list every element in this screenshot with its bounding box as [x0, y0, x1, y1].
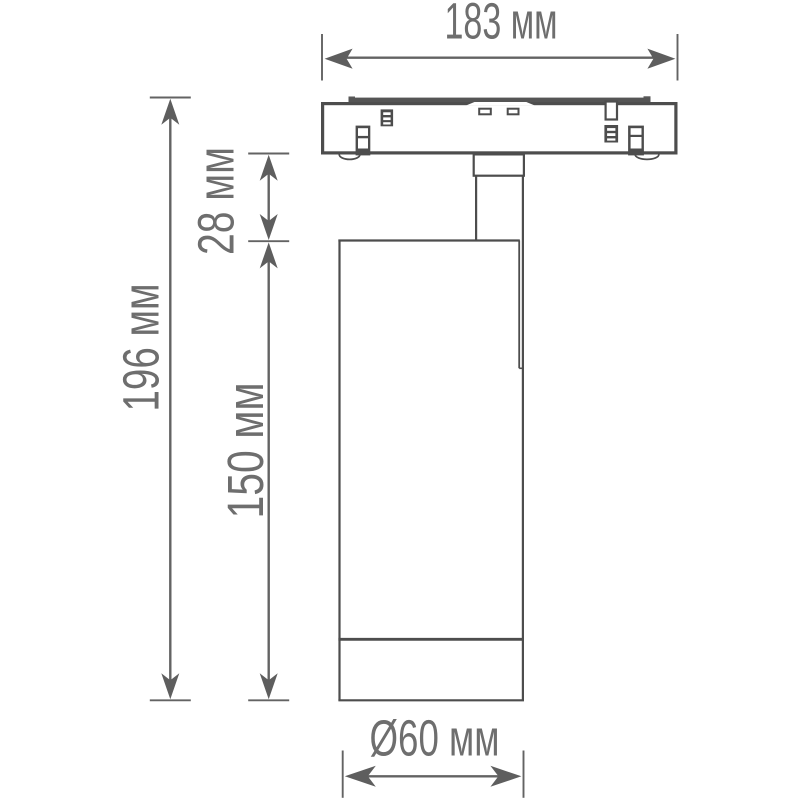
svg-text:183 мм: 183 мм [445, 0, 558, 50]
svg-text:Ø60 мм: Ø60 мм [370, 709, 500, 766]
svg-text:28 мм: 28 мм [188, 147, 245, 255]
svg-text:196 мм: 196 мм [113, 284, 170, 412]
svg-text:150 мм: 150 мм [217, 383, 274, 519]
